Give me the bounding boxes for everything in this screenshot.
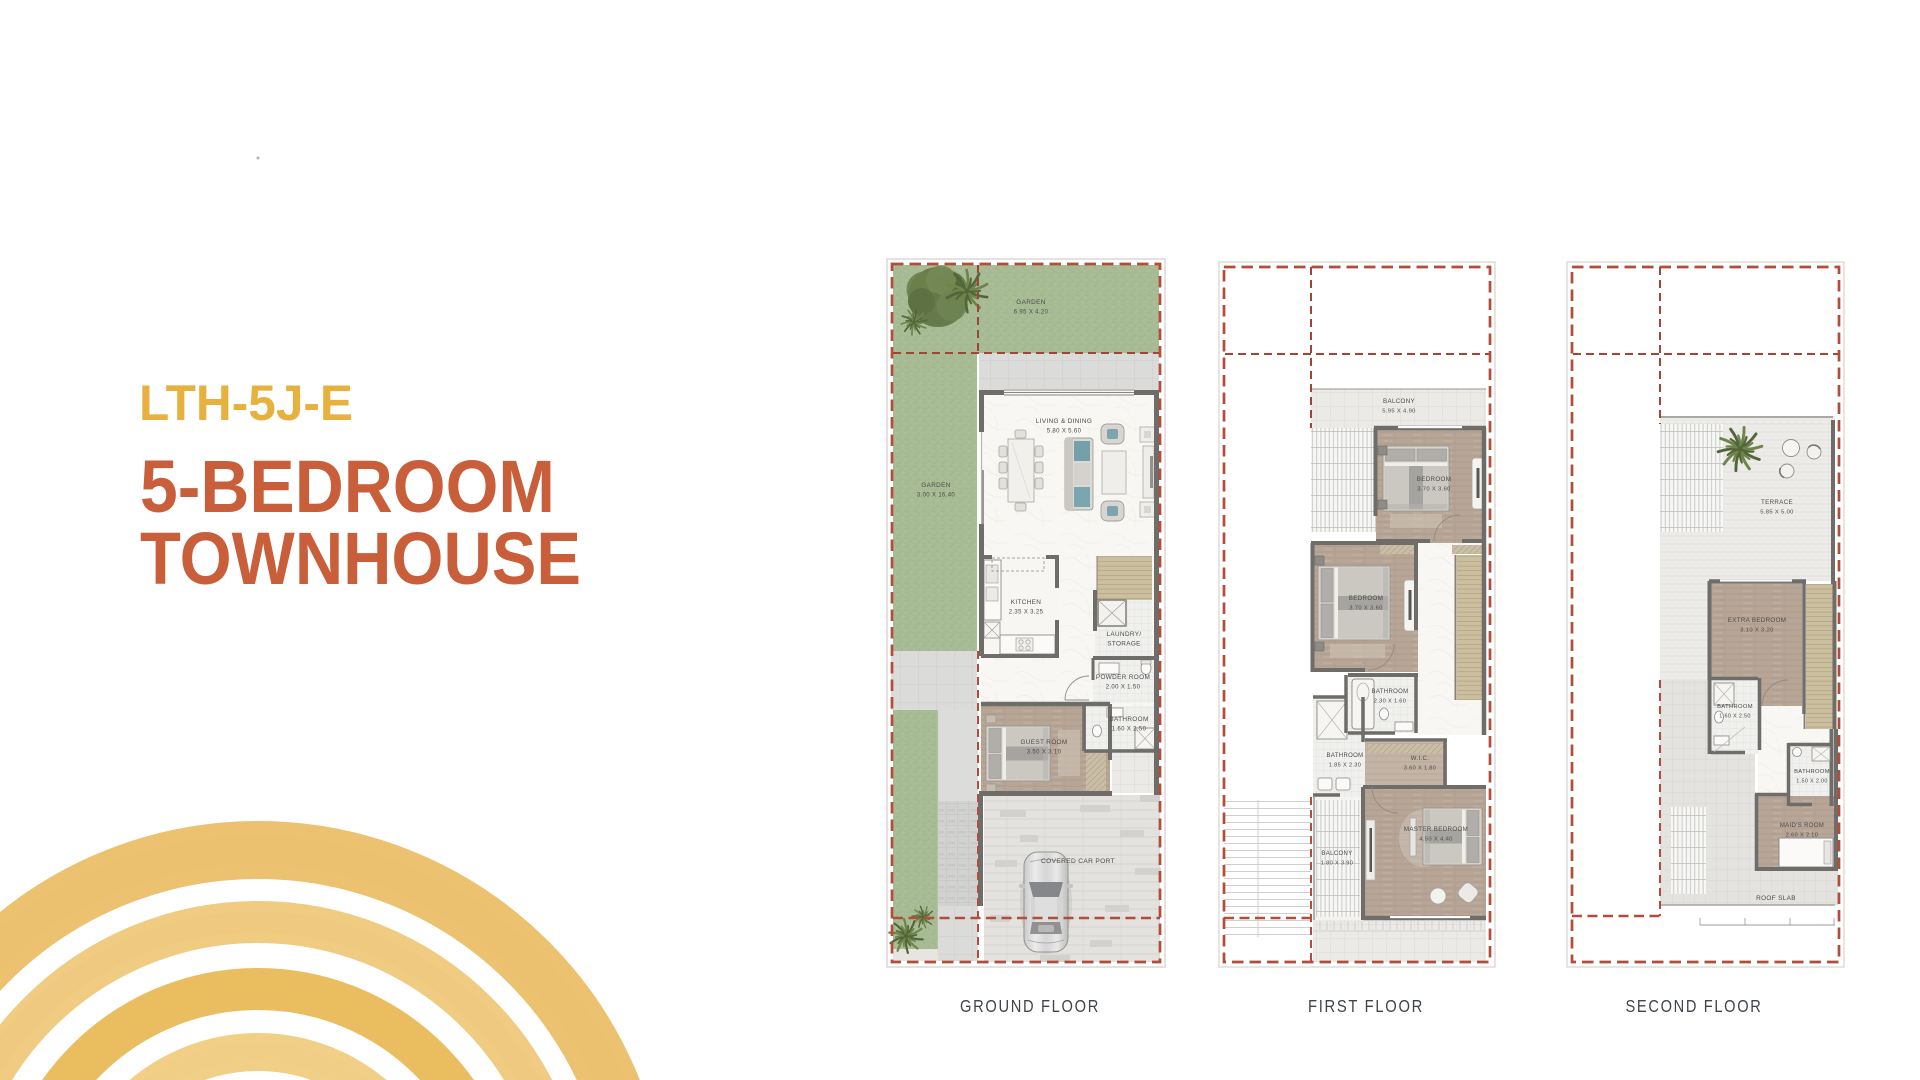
svg-text:BEDROOM: BEDROOM <box>1349 595 1383 602</box>
svg-text:1.50 X 2.00: 1.50 X 2.00 <box>1796 779 1827 785</box>
svg-text:BATHROOM: BATHROOM <box>1794 769 1830 775</box>
svg-text:2.60 X 2.10: 2.60 X 2.10 <box>1786 833 1818 839</box>
svg-text:3.10 X 3.20: 3.10 X 3.20 <box>1740 628 1774 634</box>
svg-text:5.80 X 5.60: 5.80 X 5.60 <box>1047 429 1082 435</box>
svg-text:BATHROOM: BATHROOM <box>1371 689 1408 695</box>
svg-text:1.85 X 2.30: 1.85 X 2.30 <box>1329 763 1361 769</box>
svg-text:GARDEN: GARDEN <box>1016 299 1045 306</box>
svg-text:3.00 X 16.40: 3.00 X 16.40 <box>917 493 956 499</box>
svg-text:BALCONY: BALCONY <box>1321 851 1352 857</box>
svg-text:LAUNDRY/: LAUNDRY/ <box>1107 631 1142 638</box>
svg-text:2.30 X 1.60: 2.30 X 1.60 <box>1374 699 1406 705</box>
svg-text:MAID'S ROOM: MAID'S ROOM <box>1780 823 1824 829</box>
svg-text:3.50 X 3.10: 3.50 X 3.10 <box>1027 750 1062 756</box>
svg-text:BALCONY: BALCONY <box>1383 398 1415 405</box>
svg-text:FIRST FLOOR: FIRST FLOOR <box>1308 996 1424 1016</box>
svg-text:4.50 X 4.40: 4.50 X 4.40 <box>1419 837 1453 843</box>
svg-text:3.70 X 3.60: 3.70 X 3.60 <box>1417 487 1451 493</box>
svg-text:5-BEDROOM: 5-BEDROOM <box>140 445 555 528</box>
svg-text:1.80 X 3.90: 1.80 X 3.90 <box>1321 861 1353 867</box>
svg-text:2.35 X 3.25: 2.35 X 3.25 <box>1009 610 1044 616</box>
svg-text:TOWNHOUSE: TOWNHOUSE <box>140 517 581 600</box>
svg-text:LTH-5J-E: LTH-5J-E <box>139 375 353 431</box>
svg-text:GROUND FLOOR: GROUND FLOOR <box>960 996 1100 1016</box>
svg-text:POWDER ROOM: POWDER ROOM <box>1096 674 1150 681</box>
svg-text:COVERED CAR PORT: COVERED CAR PORT <box>1041 858 1115 865</box>
svg-text:BATHROOM: BATHROOM <box>1717 704 1753 710</box>
svg-text:EXTRA BEDROOM: EXTRA BEDROOM <box>1728 617 1787 624</box>
svg-text:BATHROOM: BATHROOM <box>1109 716 1148 723</box>
svg-text:BEDROOM: BEDROOM <box>1417 476 1451 483</box>
svg-text:SECOND FLOOR: SECOND FLOOR <box>1626 996 1763 1016</box>
svg-text:1.60 X 2.50: 1.60 X 2.50 <box>1112 727 1147 733</box>
svg-text:STORAGE: STORAGE <box>1107 641 1141 648</box>
svg-text:GUEST ROOM: GUEST ROOM <box>1020 739 1067 746</box>
svg-text:W.I.C.: W.I.C. <box>1411 756 1429 762</box>
svg-text:ROOF SLAB: ROOF SLAB <box>1756 895 1796 902</box>
svg-text:TERRACE: TERRACE <box>1761 499 1793 506</box>
svg-text:GARDEN: GARDEN <box>921 482 950 489</box>
svg-text:5.95 X 4.90: 5.95 X 4.90 <box>1382 409 1416 415</box>
svg-text:BATHROOM: BATHROOM <box>1326 753 1363 759</box>
svg-text:2.00 X 1.50: 2.00 X 1.50 <box>1106 685 1141 691</box>
svg-text:KITCHEN: KITCHEN <box>1011 599 1042 606</box>
svg-text:3.60 X 1.80: 3.60 X 1.80 <box>1404 766 1436 772</box>
svg-text:LIVING & DINING: LIVING & DINING <box>1036 418 1092 425</box>
svg-text:1.60 X 2.50: 1.60 X 2.50 <box>1719 714 1750 720</box>
svg-text:3.70 X 3.60: 3.70 X 3.60 <box>1349 606 1383 612</box>
svg-text:MASTER BEDROOM: MASTER BEDROOM <box>1404 826 1468 833</box>
svg-text:5.85 X 5.00: 5.85 X 5.00 <box>1760 510 1794 516</box>
svg-text:6.95 X 4.20: 6.95 X 4.20 <box>1014 310 1049 316</box>
